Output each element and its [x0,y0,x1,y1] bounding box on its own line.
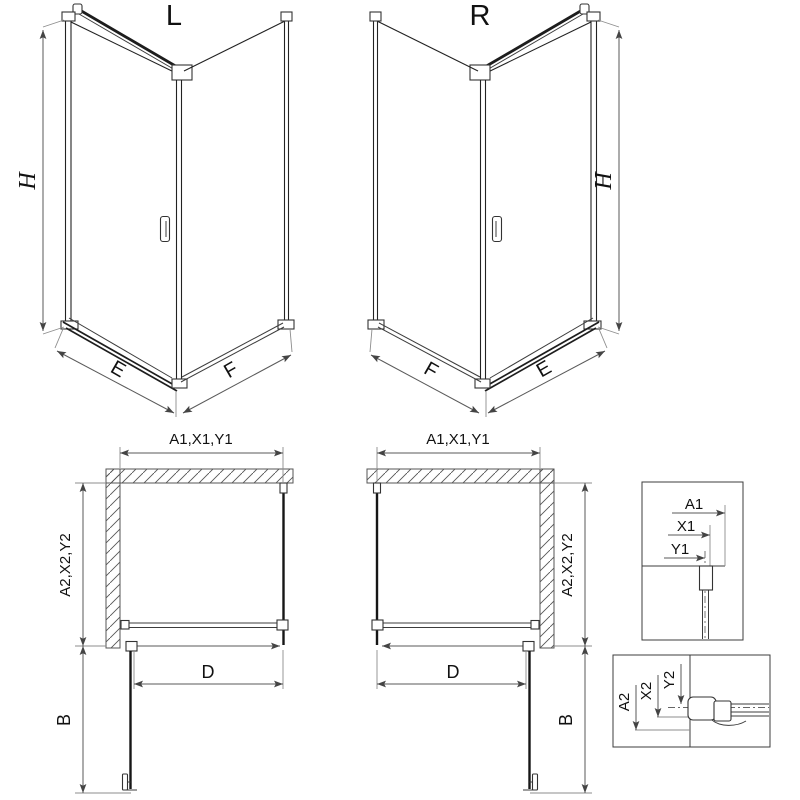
width-dim-label: A1,X1,Y1 [426,431,489,448]
a1-dimension: A1 [672,496,725,513]
door-profile-section [688,697,769,725]
fixed-side-panel [368,12,481,382]
technical-drawing-sheet: L [0,0,800,800]
entry-dim-label: D [202,662,215,682]
door-width-dimension: B [530,646,592,793]
y2-label: Y2 [661,671,678,689]
side-width-label: F [420,358,442,383]
plan-view-left: A1,X1,Y1 [54,431,293,793]
height-dim-label: H [591,171,617,191]
wall-top [367,469,554,483]
x2-dimension: X2 [638,675,658,717]
door-open [523,642,538,791]
height-dimension: H [15,20,64,334]
variant-label-left: L [166,0,182,32]
x1-dimension: X1 [668,518,710,535]
corner-pillar [172,65,192,388]
side-width-dimension: F [183,329,292,413]
door-width-label: B [556,714,576,726]
front-width-dimension: E [486,329,607,417]
iso-view-right: R [368,0,619,417]
corner-pillar [470,65,490,388]
depth-dimension-side: A2,X2,Y2 [554,483,592,646]
hinge-block [523,642,534,652]
plan-view-right: A1,X1,Y1 A2,X2,Y2 [367,431,592,793]
wall-right [540,469,554,648]
front-width-label: E [533,356,556,382]
top-support-bar [478,4,589,74]
side-width-label: F [220,358,242,383]
wall-profile-section [700,566,713,639]
wall-left [106,469,120,648]
x2-label: X2 [638,682,655,700]
depth-dim-label: A2,X2,Y2 [57,533,74,596]
hinge-block [126,642,137,652]
door-handle [161,217,170,242]
a2-dimension: A2 [616,685,636,730]
variant-label-right: R [470,0,491,32]
y1-dimension: Y1 [664,541,705,558]
entry-dimension: D [377,650,526,689]
door-panel [485,22,599,391]
fixed-side-panel [181,12,294,382]
entry-dim-label: D [447,662,460,682]
side-width-dimension: F [370,329,479,413]
door-panel [63,22,177,391]
height-dim-label: H [15,171,41,191]
depth-dimension-side: A2,X2,Y2 [57,483,106,646]
front-width-dimension: E [55,329,176,417]
y1-label: Y1 [671,541,689,558]
depth-dim-label: A2,X2,Y2 [559,533,576,596]
a1-label: A1 [685,496,703,513]
wall-profile-right [584,12,601,329]
shower-enclosure-diagram: L [0,0,800,800]
support-bar [372,620,539,630]
wall-profile-left [61,12,78,329]
y2-dimension: Y2 [661,664,681,704]
detail-wall-profile: A1 X1 Y1 [642,482,743,640]
iso-view-left: L [15,0,294,417]
wall-top [106,469,293,483]
width-dim-label: A1,X1,Y1 [169,431,232,448]
door-width-label: B [54,714,74,726]
height-dimension: H [591,20,619,334]
door-width-dimension: B [54,646,131,793]
door-open [123,642,138,791]
x1-label: X1 [677,518,695,535]
a2-label: A2 [616,693,633,711]
front-width-label: E [107,356,130,382]
entry-dimension: D [134,650,283,689]
door-handle [493,217,502,242]
support-bar [121,620,288,630]
detail-door-profile: A2 X2 Y2 [613,655,770,747]
